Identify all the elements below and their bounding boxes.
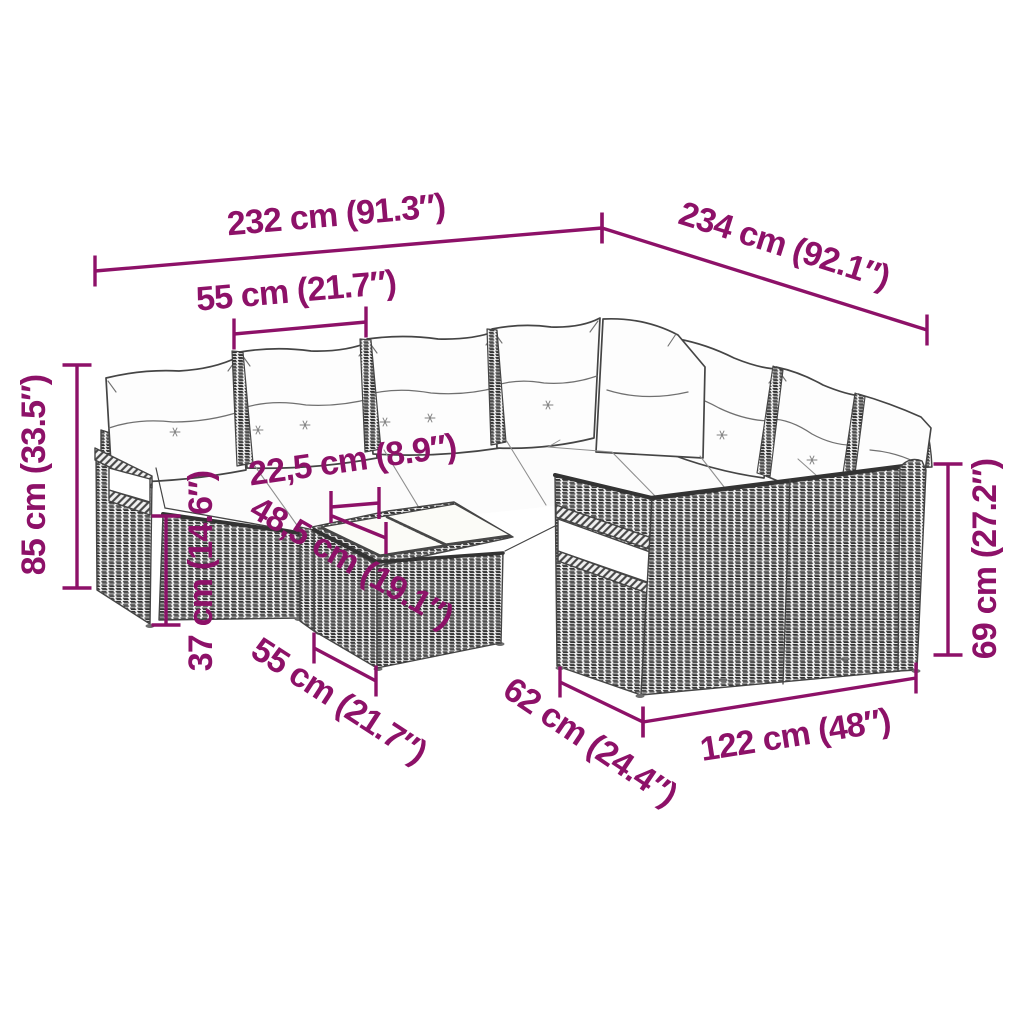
svg-text:69 cm (27.2″): 69 cm (27.2″) [966, 459, 1004, 660]
svg-text:37 cm (14.6″): 37 cm (14.6″) [182, 471, 220, 672]
svg-text:85 cm (33.5″): 85 cm (33.5″) [15, 375, 53, 576]
